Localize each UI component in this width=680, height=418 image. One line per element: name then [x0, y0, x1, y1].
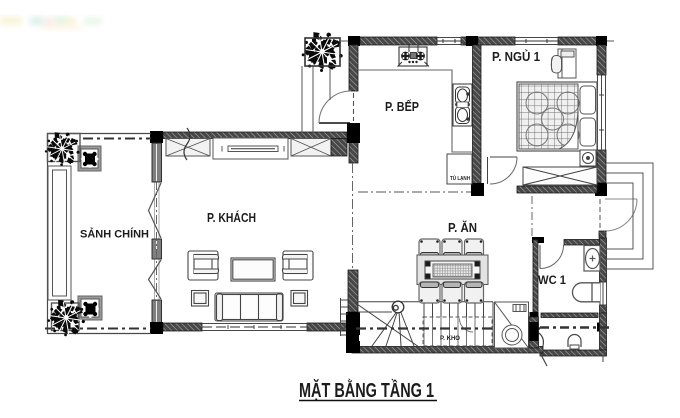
svg-text:P. KHO: P. KHO — [440, 335, 460, 342]
svg-text:P. NGỦ 1: P. NGỦ 1 — [492, 49, 540, 64]
svg-text:P. ĂN: P. ĂN — [448, 220, 477, 235]
svg-text:SẢNH CHÍNH: SẢNH CHÍNH — [80, 228, 149, 241]
svg-text:WC 1: WC 1 — [538, 273, 566, 287]
svg-text:P. BẾP: P. BẾP — [385, 99, 419, 114]
svg-text:TỦ LẠNH: TỦ LẠNH — [450, 175, 470, 182]
svg-text:P. KHÁCH: P. KHÁCH — [207, 210, 256, 225]
svg-text:MẶT BẰNG TẦNG 1: MẶT BẰNG TẦNG 1 — [299, 378, 434, 402]
